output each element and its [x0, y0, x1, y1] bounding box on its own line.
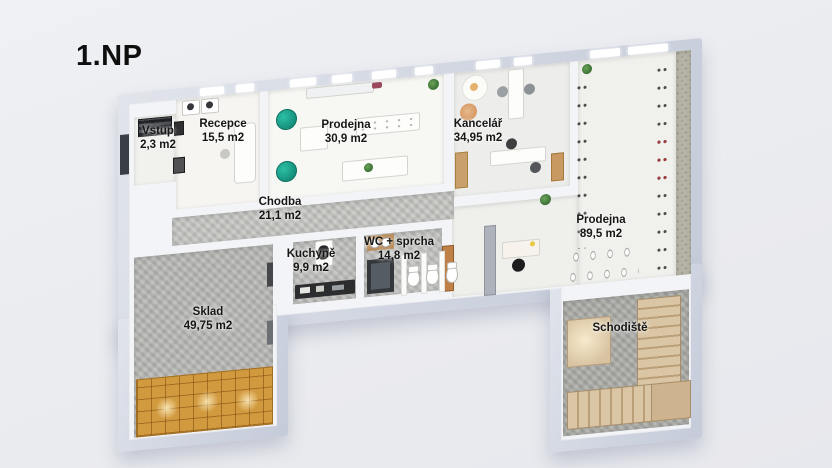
- wooden-rack: [551, 152, 564, 181]
- room-name: Kuchyně: [287, 247, 336, 261]
- office-desk: [508, 68, 524, 120]
- room-name: Prodejna: [576, 213, 625, 227]
- stall-divider: [439, 251, 445, 293]
- kitchen-item: [316, 285, 324, 292]
- room-area: 2,3 m2: [140, 138, 176, 152]
- room-area: 15,5 m2: [199, 131, 246, 145]
- room-label-prodejna-small: Prodejna 30,9 m2: [321, 118, 370, 146]
- eyewear-wall-display-red: [655, 132, 669, 187]
- staircase-upper-flight: [637, 295, 681, 395]
- appliance: [182, 99, 200, 116]
- room-label-recepce: Recepce 15,5 m2: [199, 117, 246, 145]
- room-name: Chodba: [259, 195, 302, 209]
- room-area: 9,9 m2: [287, 261, 336, 275]
- shower-tray: [371, 262, 390, 290]
- floor-plan: 1.NP Vstup 2,3 m2 Recepce 15,5 m2 Prodej…: [0, 0, 832, 468]
- room-label-kancelar: Kancelář 34,95 m2: [454, 117, 503, 145]
- entrance-door: [120, 134, 129, 175]
- room-name: Prodejna: [321, 118, 370, 132]
- wall-decor: [372, 82, 382, 89]
- partition-wall: [484, 225, 496, 296]
- room-name: Schodiště: [593, 321, 648, 335]
- room-label-schodiste: Schodiště: [593, 321, 648, 335]
- window-slit: [415, 66, 433, 76]
- room-name: Sklad: [184, 305, 233, 319]
- room-label-vstup: Vstup 2,3 m2: [140, 124, 176, 152]
- room-label-chodba: Chodba 21,1 m2: [259, 195, 302, 223]
- storage-door: [267, 262, 273, 287]
- room-area: 89,5 m2: [576, 227, 625, 241]
- room-label-wc: WC + sprcha 14,8 m2: [364, 235, 434, 263]
- room-name: Kancelář: [454, 117, 503, 131]
- room-area: 21,1 m2: [259, 209, 302, 223]
- room-area: 34,95 m2: [454, 131, 503, 145]
- room-name: WC + sprcha: [364, 235, 434, 249]
- floor-title: 1.NP: [76, 40, 142, 72]
- stair-landing: [651, 380, 691, 422]
- window-slit: [514, 56, 532, 66]
- room-area: 30,9 m2: [321, 132, 370, 146]
- kitchen-item: [300, 287, 310, 294]
- prodejna-wallpaper-wall: [676, 50, 691, 275]
- room-name: Recepce: [199, 117, 246, 131]
- room-label-prodejna-large: Prodejna 89,5 m2: [576, 213, 625, 241]
- room-area: 49,75 m2: [184, 319, 233, 333]
- wall-picture: [173, 157, 185, 174]
- room-area: 14,8 m2: [364, 249, 434, 263]
- room-name: Vstup: [140, 124, 176, 138]
- room-label-kuchyne: Kuchyně 9,9 m2: [287, 247, 336, 275]
- room-label-sklad: Sklad 49,75 m2: [184, 305, 233, 333]
- storage-door: [267, 320, 273, 345]
- appliance: [201, 98, 219, 115]
- wooden-cabinet: [455, 152, 468, 189]
